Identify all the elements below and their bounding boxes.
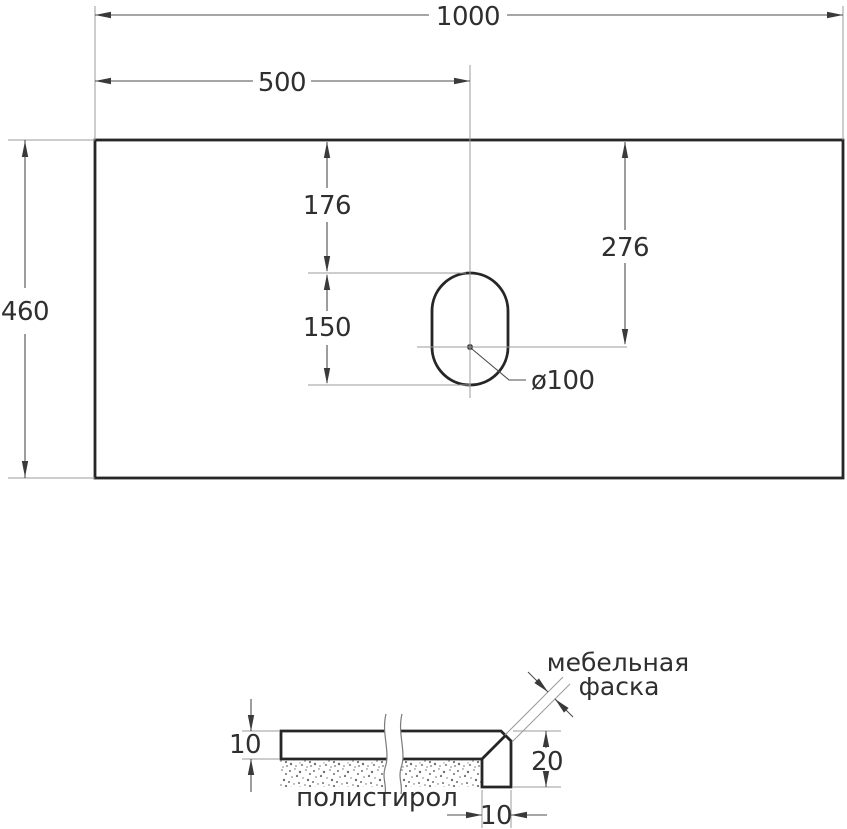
chamfer-face-line-1	[505, 677, 563, 735]
dim-slab-thickness-value: 10	[229, 730, 261, 760]
dim-total-width: 1000	[95, 2, 843, 32]
dim-slab-thickness: 10	[229, 699, 280, 792]
arrowhead-right	[827, 12, 843, 18]
arrowhead-down	[622, 329, 628, 345]
dim-edge-height-value: 20	[531, 747, 563, 777]
arrowhead-down	[22, 461, 28, 477]
top-view: 1000 500 460 176 276	[1, 2, 843, 478]
dim-cutout-length-value: 150	[303, 313, 351, 343]
dim-total-width-value: 1000	[436, 2, 500, 32]
arrowhead-left	[511, 812, 527, 818]
dim-half-width: 500	[95, 68, 470, 98]
arrowhead-up	[324, 142, 330, 158]
cutout-diameter-value: ø100	[531, 366, 595, 396]
extension-lines	[8, 6, 843, 478]
core-material-label: полистирол	[296, 783, 458, 813]
arrowhead-up	[622, 142, 628, 158]
dim-arc-center-offset-value: 276	[601, 233, 649, 263]
arrowhead-up	[324, 274, 330, 290]
dim-depth-value: 460	[1, 297, 49, 327]
centerlines	[417, 65, 627, 398]
technical-drawing-countertop: 1000 500 460 176 276	[0, 0, 847, 829]
miter-joint-line	[482, 736, 505, 759]
chamfer-label-line2: фаска	[579, 672, 660, 701]
arrowhead-down	[324, 368, 330, 384]
arrowhead-left	[95, 12, 111, 18]
dim-edge-height: 20	[513, 731, 563, 787]
chamfer-callout: мебельная фаска	[505, 648, 689, 742]
break-lines	[384, 714, 403, 794]
leader-line	[472, 349, 526, 380]
dim-depth: 460	[1, 140, 49, 478]
countertop-outline	[95, 140, 843, 478]
callout-diameter: ø100	[472, 349, 595, 396]
dim-arc-center-offset: 276	[601, 142, 649, 345]
dim-cutout-top-offset-value: 176	[303, 191, 351, 221]
dim-cutout-top-offset: 176	[303, 142, 351, 272]
dim-edge-width-value: 10	[480, 801, 512, 829]
dim-edge-width: 10	[447, 790, 547, 829]
chamfer-face-line-2	[512, 684, 570, 742]
dim-cutout-length: 150	[303, 274, 351, 384]
arrowhead-down	[324, 256, 330, 272]
arrowhead-up	[248, 759, 254, 775]
arrowhead-up	[22, 141, 28, 157]
arrowhead-left	[95, 78, 111, 84]
arrowhead-up	[543, 731, 549, 747]
arrowhead-down	[248, 715, 254, 731]
section-view: 10 20 10 мебельная	[229, 648, 689, 829]
arrowhead-right	[454, 78, 470, 84]
dim-half-width-value: 500	[258, 68, 306, 98]
